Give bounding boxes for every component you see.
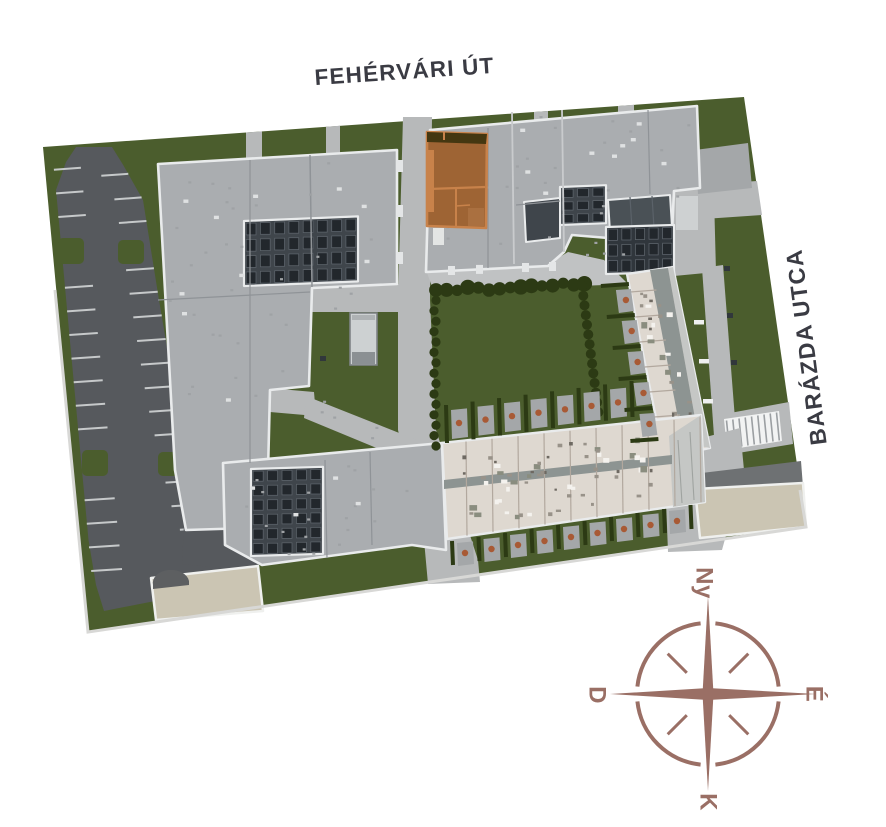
svg-text:D: D bbox=[584, 686, 611, 704]
svg-text:É: É bbox=[801, 686, 829, 703]
svg-text:K: K bbox=[695, 793, 722, 811]
svg-text:FEHÉRVÁRI ÚT: FEHÉRVÁRI ÚT bbox=[314, 53, 496, 90]
svg-text:Ny: Ny bbox=[691, 567, 718, 599]
